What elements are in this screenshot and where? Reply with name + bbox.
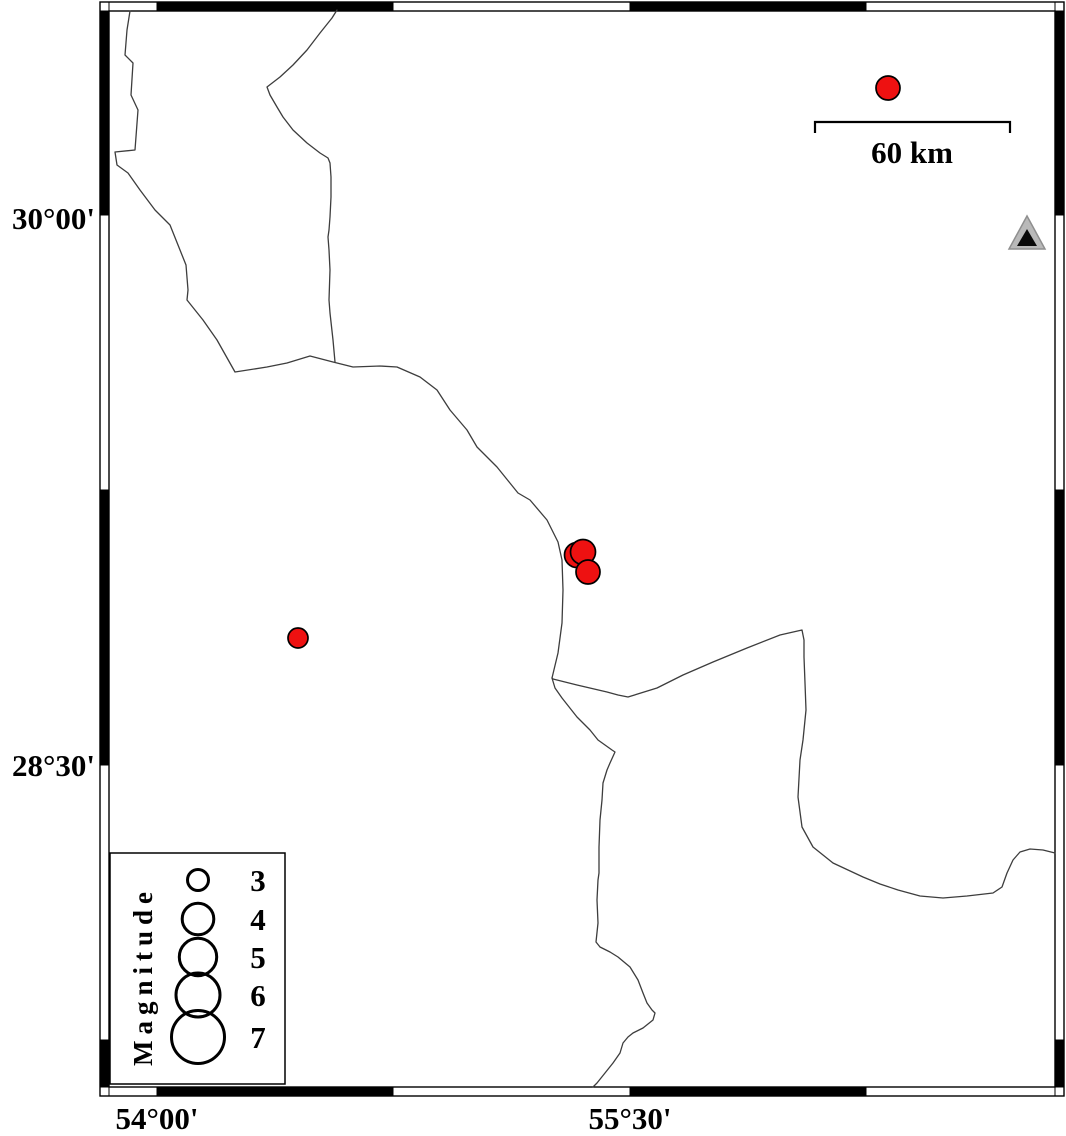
scale-bar: 60 km xyxy=(815,122,1010,170)
epicenter-marker xyxy=(576,560,600,584)
frame-cell-bottom xyxy=(157,1087,393,1096)
north-boundary xyxy=(267,10,337,362)
frame-cell-bottom xyxy=(109,1087,157,1096)
frame-cell-right xyxy=(1055,215,1064,490)
lon-label-55-30: 55°30' xyxy=(588,1101,671,1136)
scale-bar-label: 60 km xyxy=(871,135,953,170)
frame-cell-right xyxy=(1055,765,1064,1040)
legend-magnitude-value: 5 xyxy=(250,940,266,975)
east-boundary xyxy=(552,630,1055,898)
frame-cell-top xyxy=(630,2,866,11)
legend-title: Magnitude xyxy=(128,886,158,1066)
epicenter-marker xyxy=(288,628,308,648)
magnitude-legend: Magnitude 34567 xyxy=(110,853,285,1084)
frame-cell-left xyxy=(100,215,109,490)
frame-cell-right xyxy=(1055,11,1064,215)
frame-cell-bottom xyxy=(866,1087,1055,1096)
legend-magnitude-value: 7 xyxy=(250,1020,266,1055)
map-canvas: 60 km Magnitude 34567 30°00' 28°30' 54°0… xyxy=(0,0,1066,1136)
frame-cell-top xyxy=(109,2,157,11)
frame-cell-left xyxy=(100,490,109,765)
frame-cell-right xyxy=(1055,1040,1064,1087)
frame-cell-top xyxy=(157,2,393,11)
frame-cell-bottom xyxy=(630,1087,866,1096)
seismicity-map: 60 km Magnitude 34567 30°00' 28°30' 54°0… xyxy=(0,0,1066,1136)
frame-cell-left xyxy=(100,1040,109,1087)
legend-magnitude-value: 3 xyxy=(250,863,266,898)
legend-magnitude-value: 4 xyxy=(250,902,266,937)
frame-cell-left xyxy=(100,765,109,1040)
frame-cell-bottom xyxy=(393,1087,630,1096)
lon-label-54-00: 54°00' xyxy=(115,1101,198,1136)
lat-label-30-00: 30°00' xyxy=(12,201,95,236)
legend-magnitude-value: 6 xyxy=(250,978,266,1013)
frame-cell-left xyxy=(100,11,109,215)
lat-label-28-30: 28°30' xyxy=(12,748,95,783)
station-triangle-marker xyxy=(1009,216,1045,249)
frame-cell-top xyxy=(393,2,630,11)
earthquake-epicenters xyxy=(288,76,900,648)
scale-bar-bracket xyxy=(815,122,1010,133)
epicenter-marker xyxy=(876,76,900,100)
frame-cell-top xyxy=(866,2,1055,11)
frame-cell-right xyxy=(1055,490,1064,765)
